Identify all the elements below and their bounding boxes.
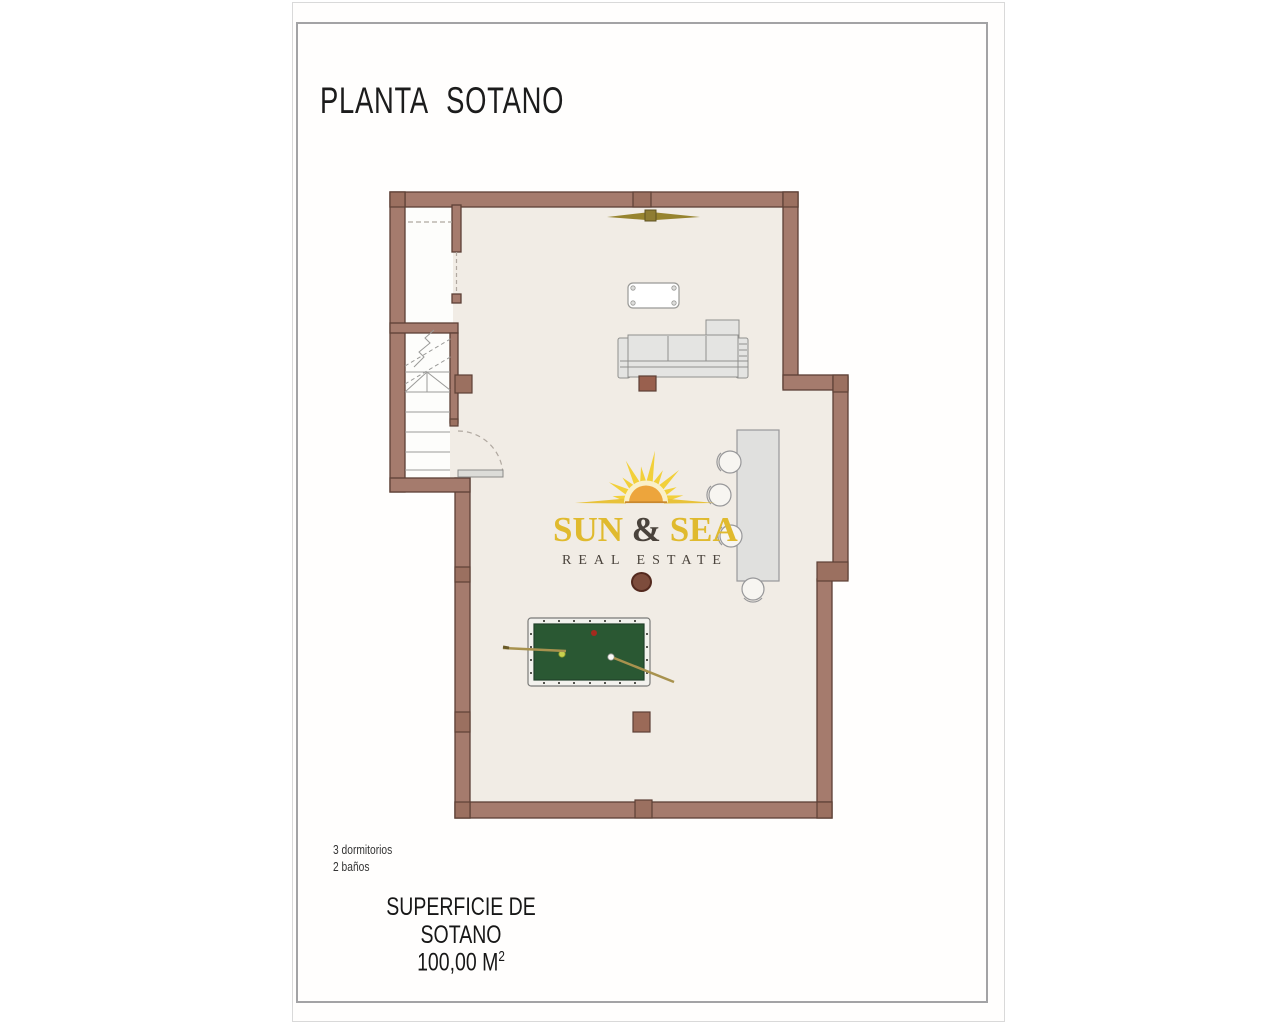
- sun-and-sea-logo: SUN & SEA REAL ESTATE: [553, 449, 737, 592]
- side-table: [639, 376, 656, 391]
- stairwell-room: [405, 333, 450, 478]
- wall-right-mid: [833, 377, 848, 579]
- wall-closet-partition: [452, 205, 461, 252]
- column-left-wall-a: [455, 567, 470, 582]
- pillar: [633, 712, 650, 732]
- white-ball: [608, 654, 614, 660]
- logo-wordmark: SUN & SEA: [553, 512, 737, 547]
- logo-subtitle: REAL ESTATE: [553, 554, 737, 568]
- wall-left-upper: [390, 192, 405, 492]
- room-summary: 3 dormitorios 2 baños: [333, 842, 392, 876]
- kitchen-island: [737, 430, 779, 581]
- logo-ampersand: &: [623, 510, 670, 549]
- wall-top: [390, 192, 798, 207]
- closet-room: [405, 207, 453, 323]
- red-ball: [591, 630, 597, 636]
- column-bottom-wall: [635, 800, 652, 818]
- coffee-table: [628, 283, 679, 308]
- sun-logo-icon: [555, 449, 735, 507]
- wall-stair-bottom: [390, 478, 470, 492]
- page-title: PLANTA SOTANO: [320, 80, 564, 122]
- bathrooms-label: 2 baños: [333, 859, 392, 876]
- area-value: 100,00 M2: [367, 949, 554, 977]
- logo-word-sun: SUN: [553, 510, 623, 549]
- bedrooms-label: 3 dormitorios: [333, 842, 392, 859]
- pool-table: [503, 618, 674, 686]
- wall-stair-top: [390, 323, 458, 333]
- sofa-body: [628, 335, 738, 377]
- logo-word-sea: SEA: [670, 510, 738, 549]
- column-stair-pier: [455, 375, 472, 393]
- logo-dot: [631, 572, 652, 592]
- area-label: SUPERFICIE DE SOTANO: [367, 894, 554, 949]
- floor-plan-page: { "page": { "title": "PLANTA SOTANO", "f…: [0, 0, 1280, 1024]
- door-leaf: [458, 470, 503, 477]
- door-jamb: [450, 419, 458, 426]
- wall-partition-stub: [452, 294, 461, 303]
- area-block: SUPERFICIE DE SOTANO 100,00 M2: [367, 894, 554, 977]
- wall-right-lower: [817, 579, 832, 818]
- area-superscript: 2: [498, 948, 505, 965]
- wall-left-lower: [455, 478, 470, 818]
- column-right-step: [817, 562, 848, 581]
- column-top-wall: [633, 192, 651, 207]
- column-left-wall-b: [455, 712, 470, 732]
- cue-stick-left-tip: [503, 647, 509, 648]
- wall-right-upper: [783, 192, 798, 388]
